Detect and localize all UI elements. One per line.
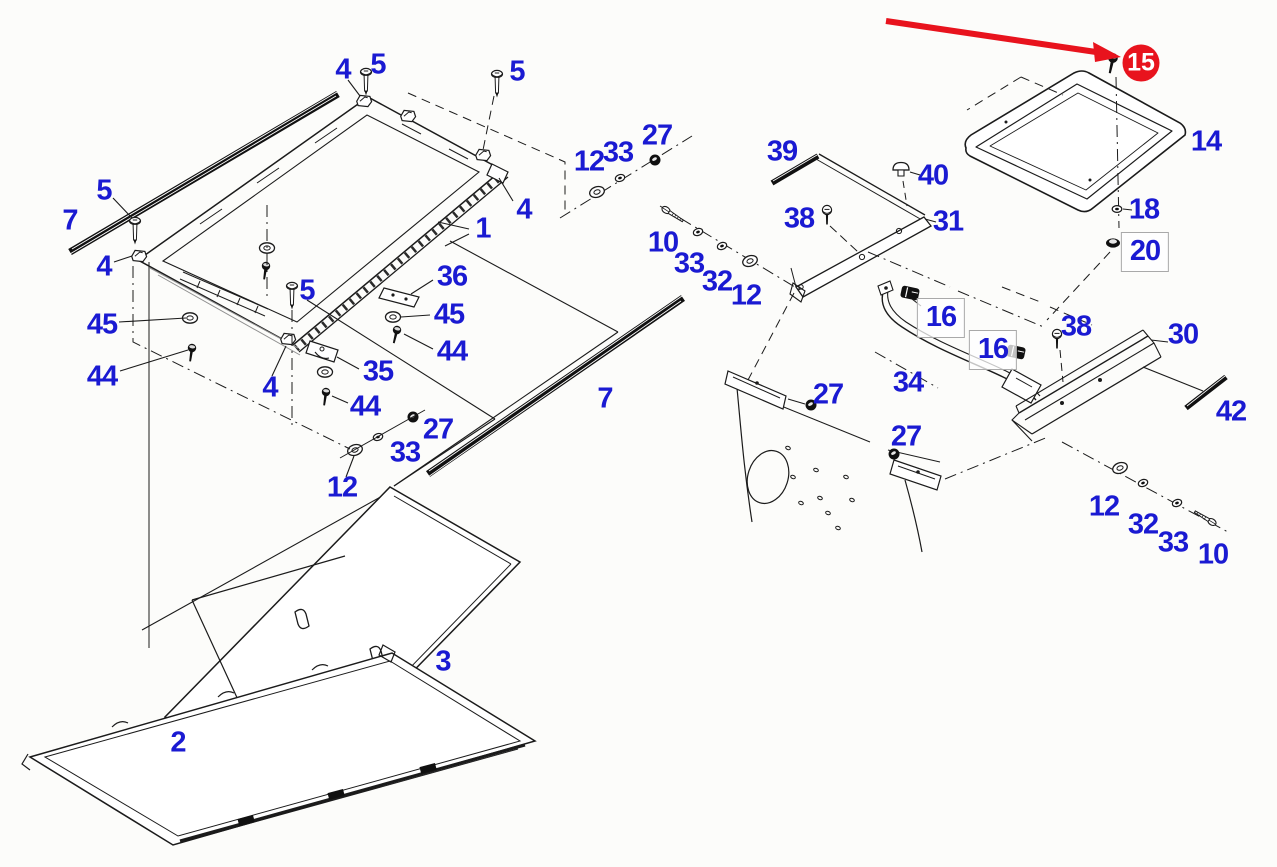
part-label-16-boxed[interactable]: 16 <box>917 298 965 338</box>
part-label-5[interactable]: 5 <box>370 51 385 80</box>
parts-diagram-page: 4552733125744136545454444354447273312323… <box>0 0 1277 867</box>
part-label-16-boxed[interactable]: 16 <box>969 330 1017 370</box>
part-label-34[interactable]: 34 <box>893 369 923 398</box>
part-label-10[interactable]: 10 <box>1198 541 1228 570</box>
part-label-32[interactable]: 32 <box>702 268 732 297</box>
part-label-31[interactable]: 31 <box>933 208 963 237</box>
part-label-5[interactable]: 5 <box>509 58 524 87</box>
part-label-7[interactable]: 7 <box>597 385 612 414</box>
part-label-14[interactable]: 14 <box>1191 128 1221 157</box>
part-label-2[interactable]: 2 <box>170 729 185 758</box>
part-label-44[interactable]: 44 <box>437 338 467 367</box>
weatherstrip-7-upper <box>70 92 338 254</box>
part-label-18[interactable]: 18 <box>1129 196 1159 225</box>
part-label-33[interactable]: 33 <box>674 250 704 279</box>
part-label-4[interactable]: 4 <box>335 56 350 85</box>
part-label-5[interactable]: 5 <box>299 277 314 306</box>
part-label-36[interactable]: 36 <box>437 263 467 292</box>
part-label-4[interactable]: 4 <box>516 196 531 225</box>
part-35-bracket <box>306 341 338 362</box>
part-label-27[interactable]: 27 <box>813 381 843 410</box>
part-36-plate <box>379 288 419 307</box>
part-label-12[interactable]: 12 <box>574 148 604 177</box>
nut-20 <box>1106 238 1120 247</box>
washer-18 <box>1112 206 1122 213</box>
screw-38-left-guide <box>830 226 858 252</box>
part-label-3[interactable]: 3 <box>435 648 450 677</box>
screw-38-left <box>822 205 831 224</box>
part-label-32[interactable]: 32 <box>1128 511 1158 540</box>
weatherstrip-7-middle <box>428 296 683 477</box>
part-label-38[interactable]: 38 <box>1061 313 1091 342</box>
part-label-20-boxed[interactable]: 20 <box>1121 232 1169 272</box>
part-label-33[interactable]: 33 <box>1158 529 1188 558</box>
part-label-12[interactable]: 12 <box>1089 493 1119 522</box>
cab-bracket-upper <box>725 371 786 409</box>
part-label-39[interactable]: 39 <box>767 138 797 167</box>
part-label-27[interactable]: 27 <box>891 423 921 452</box>
part-label-4[interactable]: 4 <box>262 374 277 403</box>
diagram-linework <box>0 0 1277 867</box>
part-label-45[interactable]: 45 <box>87 311 117 340</box>
part-label-12[interactable]: 12 <box>327 474 357 503</box>
part-label-27[interactable]: 27 <box>423 416 453 445</box>
part-14-hatch <box>965 71 1185 212</box>
part-label-30[interactable]: 30 <box>1168 321 1198 350</box>
nut-27-upper-leader <box>788 399 805 404</box>
part-label-40[interactable]: 40 <box>918 162 948 191</box>
part-label-44[interactable]: 44 <box>350 393 380 422</box>
cab-bracket-lower <box>890 460 941 490</box>
part-label-15-circled[interactable]: 15 <box>1123 45 1160 82</box>
part-label-42[interactable]: 42 <box>1216 398 1246 427</box>
part-label-33[interactable]: 33 <box>390 439 420 468</box>
part-label-27[interactable]: 27 <box>642 122 672 151</box>
part-label-1[interactable]: 1 <box>475 215 490 244</box>
part-label-45[interactable]: 45 <box>434 301 464 330</box>
part-label-35[interactable]: 35 <box>363 358 393 387</box>
part-label-12[interactable]: 12 <box>731 282 761 311</box>
part-label-38[interactable]: 38 <box>784 205 814 234</box>
knob-40 <box>893 163 909 177</box>
part-label-33[interactable]: 33 <box>603 139 633 168</box>
part-label-44[interactable]: 44 <box>87 363 117 392</box>
highlight-arrow <box>886 21 1121 62</box>
screw-38-right-guide <box>1060 350 1063 382</box>
part-label-4[interactable]: 4 <box>96 253 111 282</box>
part-label-7[interactable]: 7 <box>62 207 77 236</box>
part-label-5[interactable]: 5 <box>96 177 111 206</box>
